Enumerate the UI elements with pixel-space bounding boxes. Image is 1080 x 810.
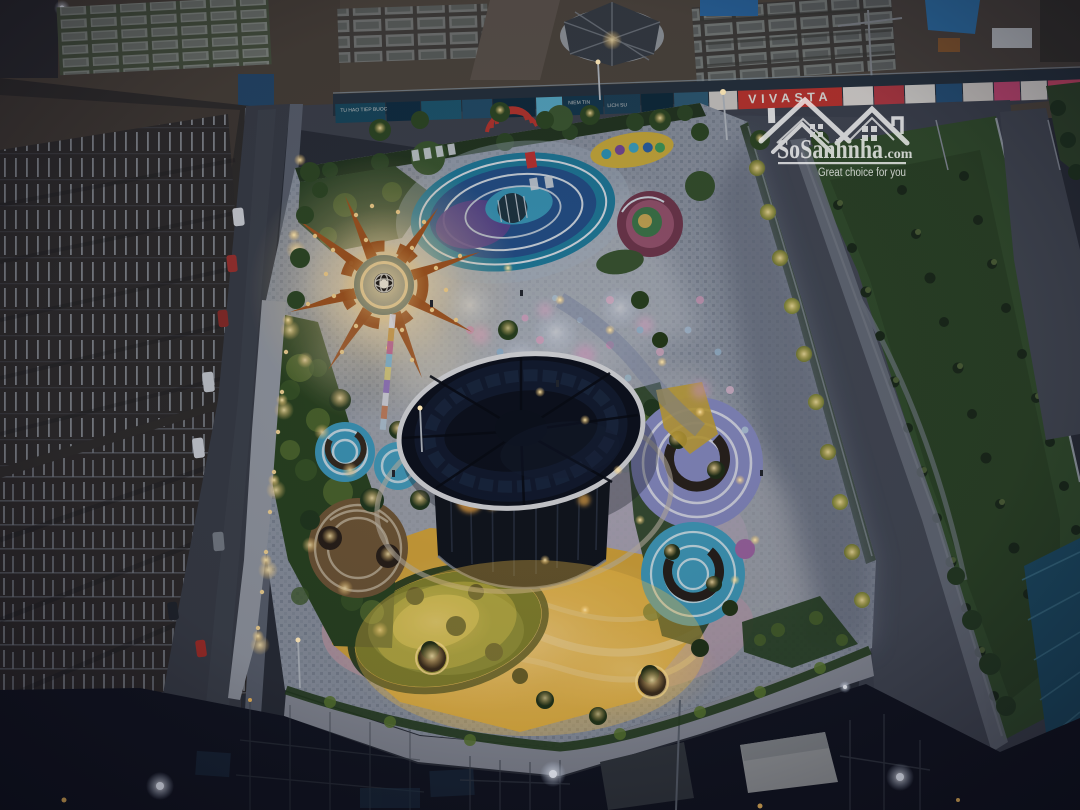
- svg-text:.com: .com: [884, 147, 913, 162]
- svg-text:SoSanhnha: SoSanhnha: [777, 134, 883, 164]
- svg-text:Great choice for you: Great choice for you: [818, 167, 906, 179]
